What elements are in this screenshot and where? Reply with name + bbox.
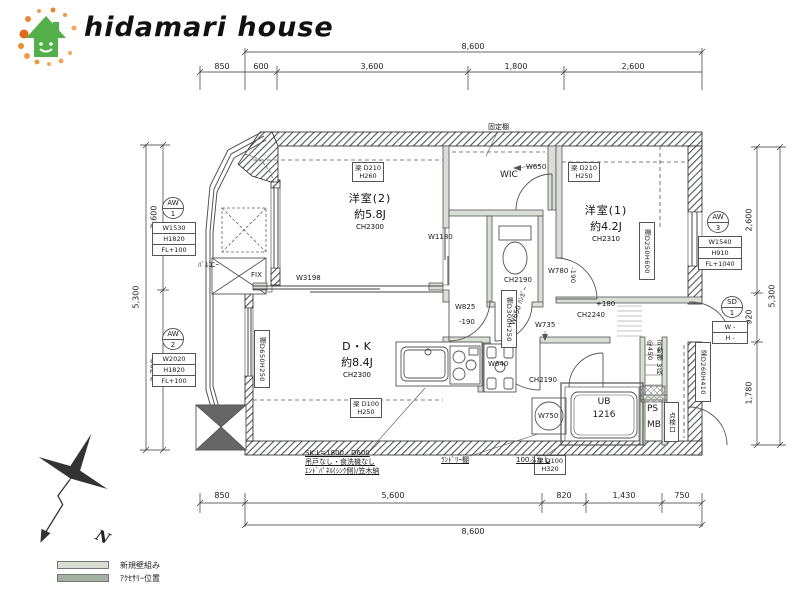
tag-sd1-num: 1 — [722, 308, 742, 318]
shelf-y1-label: 棚D250H600 — [642, 229, 652, 274]
inspection-hatch-label: 点検口 — [667, 412, 677, 433]
dim-bottom-total: 8,600 — [462, 527, 485, 536]
dim-bottom-850: 850 — [214, 491, 229, 500]
movable-shelf-label: 可動棚 3段 @450 — [646, 340, 664, 396]
legend-swatch-accessory — [57, 574, 109, 582]
tag-aw3-row2: H910 — [699, 248, 741, 259]
room-yoshitsu1: 洋室(1) 約4.2J CH2310 — [585, 202, 628, 243]
tag-aw2-row2: H1820 — [153, 365, 195, 376]
tag-aw1-row2: H1820 — [153, 234, 195, 245]
tag-aw2-num: 2 — [163, 340, 183, 350]
sk-spec-line3: ｴﾝﾄﾞﾊﾟﾈﾙ(ｼﾝｸ側)/笠木納 — [305, 467, 379, 475]
tag-aw3-num: 3 — [708, 223, 728, 233]
w1180-label: W1180 — [428, 233, 453, 241]
outer-walls — [238, 132, 702, 455]
ub-label: UB — [598, 398, 611, 406]
beam-y1-box: 梁 D210 H250 — [568, 162, 600, 182]
floorplan-drawing — [0, 0, 810, 602]
room-dk: D・K 約8.4J CH2300 — [341, 338, 373, 379]
dim-bottom-1430: 1,430 — [613, 491, 636, 500]
shelf-y1-box: 棚D250H600 — [639, 222, 655, 280]
fixed-shelf-label: 固定棚 — [488, 123, 509, 131]
tag-sd1-type: SD — [722, 297, 742, 308]
ch2190-washroom-label: CH2190 — [529, 376, 557, 384]
w735-label: W735 — [535, 321, 555, 329]
fukashi-label: 100ふかし — [516, 456, 550, 464]
w750-label: W750 — [538, 412, 558, 420]
room-yoshitsu2-ch: CH2300 — [349, 223, 392, 231]
ch2190-wc-label: CH2190 — [504, 276, 532, 284]
tag-sd1-row2: H - — [713, 333, 747, 343]
room-wic-label: WIC — [500, 171, 518, 179]
dim-top-total: 8,600 — [462, 42, 485, 51]
plus180-label: +180 — [596, 300, 615, 308]
sliding-doors — [253, 228, 449, 292]
tag-aw1-type: AW — [163, 198, 183, 209]
room-dk-size: 約8.4J — [341, 354, 373, 370]
room-dk-name: D・K — [341, 338, 373, 354]
beam-dk-box: 梁 D100 H250 — [350, 398, 382, 418]
room-yoshitsu1-ch: CH2310 — [585, 235, 628, 243]
logo-house-icon — [18, 8, 77, 67]
room-dk-ch: CH2300 — [341, 371, 373, 379]
beam-east-label: 梁D260H410 — [698, 350, 708, 395]
minus190-hall-label: -190 — [459, 318, 475, 326]
beam-y1-l1: 梁 D210 — [571, 164, 597, 172]
inspection-hatch-box: 点検口 — [664, 402, 679, 442]
legend-label-new-wall: 新規壁組み — [120, 560, 160, 571]
tag-aw3-type: AW — [708, 212, 728, 223]
room-yoshitsu2-size: 約5.8J — [349, 206, 392, 222]
tag-aw3-circle: AW 3 — [707, 211, 729, 233]
dim-top-3600: 3,600 — [361, 62, 384, 71]
w825-label: W825 — [455, 303, 475, 311]
dim-bottom-5600: 5,600 — [382, 491, 405, 500]
shelf-dk-label: 棚D650H250 — [257, 337, 267, 382]
w3198-label: W3198 — [296, 274, 321, 282]
dim-right-total: 5,300 — [768, 285, 777, 308]
sk-spec-line1: SK:L=1800・D600 — [305, 449, 370, 457]
logo-text: hidamari house — [84, 12, 334, 43]
tag-sd1-circle: SD 1 — [721, 296, 743, 318]
dim-bottom-750: 750 — [674, 491, 689, 500]
tag-aw1-circle: AW 1 — [162, 197, 184, 219]
tag-aw1-row1: W1530 — [153, 223, 195, 234]
mb-label: MB — [647, 421, 661, 429]
entry-step-lines — [617, 306, 642, 336]
tag-aw3-row1: W1540 — [699, 237, 741, 248]
w650-label: W650 — [526, 163, 546, 171]
floorplan-page: hidamari house 8,600 850 600 3,600 1,800… — [0, 0, 810, 602]
beam-y1-l2: H250 — [571, 172, 597, 180]
room-yoshitsu2-name: 洋室(2) — [349, 190, 392, 206]
tag-aw2-row3: FL+100 — [153, 376, 195, 386]
tag-aw2-rows: W2020 H1820 FL+100 — [152, 353, 196, 387]
beam-dk-l1: 梁 D100 — [353, 400, 379, 408]
tag-sd1-rows: W - H - — [712, 321, 748, 344]
dim-top-850: 850 — [214, 62, 229, 71]
beam-y2-box: 梁 D210 H260 — [352, 162, 384, 182]
dim-top-1800: 1,800 — [505, 62, 528, 71]
beam-y2-l1: 梁 D210 — [355, 164, 381, 172]
fix-window-label: FIX — [251, 271, 262, 279]
dim-top-600: 600 — [253, 62, 268, 71]
interior-walls — [253, 146, 702, 445]
tag-aw2-circle: AW 2 — [162, 328, 184, 350]
ps-label: PS — [647, 405, 658, 413]
dim-right-2600: 2,600 — [745, 209, 754, 232]
beam-dk-l2: H250 — [353, 408, 379, 416]
w780-label: W780 — [548, 267, 568, 275]
dim-bottom-820: 820 — [556, 491, 571, 500]
minus190-right-label: -190 — [569, 267, 577, 287]
sk-spec-line2: 吊戸なし・食洗機なし — [305, 458, 375, 466]
dim-top-2600: 2,600 — [622, 62, 645, 71]
room-yoshitsu2: 洋室(2) 約5.8J CH2300 — [349, 190, 392, 231]
ub-size-label: 1216 — [593, 411, 616, 419]
room-yoshitsu1-name: 洋室(1) — [585, 202, 628, 218]
room-yoshitsu1-size: 約4.2J — [585, 218, 628, 234]
toilet — [499, 226, 531, 274]
laundry-shelf-label: ﾗﾝﾄﾞﾘｰ棚 — [441, 456, 469, 464]
ch2240-label: CH2240 — [577, 311, 605, 319]
vanity — [484, 344, 516, 392]
tag-aw3-rows: W1540 H910 FL+1040 — [698, 236, 742, 270]
tag-aw1-row3: FL+100 — [153, 245, 195, 255]
tag-aw1-rows: W1530 H1820 FL+100 — [152, 222, 196, 256]
beam-y2-l2: H260 — [355, 172, 381, 180]
shelf-dk-box: 棚D650H250 — [254, 330, 270, 388]
dim-right-1780: 1,780 — [745, 382, 754, 405]
room-balcony-label: ﾊﾞﾙｺﾆｰ — [198, 261, 219, 269]
tag-aw3-row3: FL+1040 — [699, 259, 741, 269]
legend-label-accessory: ｱｸｾｻﾘｰ位置 — [120, 573, 160, 584]
tag-sd1-row1: W - — [713, 322, 747, 333]
beam-south-l2: H320 — [537, 465, 563, 473]
dim-left-total: 5,300 — [132, 286, 141, 309]
tag-aw2-type: AW — [163, 329, 183, 340]
tag-aw2-row1: W2020 — [153, 354, 195, 365]
beam-east-box: 梁D260H410 — [695, 342, 711, 402]
tag-aw1-num: 1 — [163, 209, 183, 219]
kitchen — [396, 342, 482, 386]
legend-swatch-new-wall — [57, 561, 109, 569]
w640-label: W640 — [488, 360, 508, 368]
